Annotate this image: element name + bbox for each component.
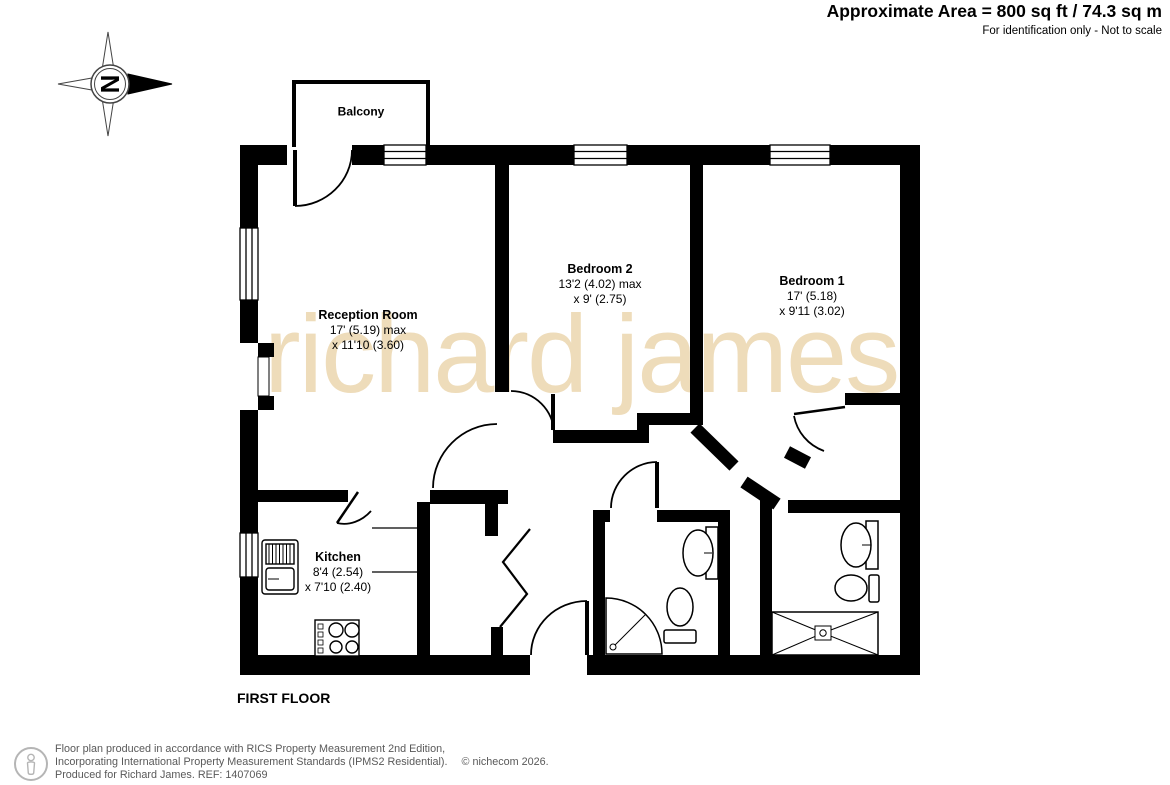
disclaimer-text: For identification only - Not to scale (827, 25, 1162, 37)
room-label-reception: Reception Room 17' (5.19) max x 11'10 (3… (318, 308, 417, 352)
toilet-icon (835, 575, 879, 602)
compass-north-point (102, 32, 114, 70)
alcove-wall-tab (258, 343, 274, 357)
wall-reception-bedroom2 (495, 165, 509, 392)
window-icon (384, 145, 426, 165)
wall-kitchen-top (258, 490, 348, 502)
alcove-niche (258, 357, 269, 396)
room-label-bedroom1: Bedroom 1 17' (5.18) x 9'11 (3.02) (779, 274, 844, 318)
ensuite-fixtures (772, 521, 879, 655)
room-label-kitchen: Kitchen 8'4 (2.54) x 7'10 (2.40) (305, 550, 371, 594)
kitchen-counter-lines (372, 528, 417, 572)
window-icon (240, 228, 258, 300)
hob-icon (315, 620, 359, 656)
compass-south-point (102, 98, 114, 136)
window-icon (770, 145, 830, 165)
sink-icon (683, 527, 718, 579)
wall-shower-room (593, 510, 605, 655)
wall-ensuite (760, 500, 772, 655)
door-reception (433, 424, 497, 488)
shower-icon (606, 598, 662, 654)
floorplan-page: richard james N (0, 0, 1170, 785)
floor-title: FIRST FLOOR (237, 690, 330, 706)
wall-bedroom2-bedroom1 (690, 165, 703, 425)
door-bedroom1 (794, 407, 845, 451)
compass-east-arrow (128, 74, 172, 94)
window-icon (240, 533, 258, 577)
compass-north-letter: N (95, 75, 125, 94)
footer-line2: Incorporating International Property Mea… (55, 756, 549, 769)
windows (240, 145, 830, 577)
diagonal-walls (695, 428, 808, 504)
wall-kitchen-right (417, 502, 430, 655)
footer-line3: Produced for Richard James. REF: 1407069 (55, 769, 549, 782)
door-entrance (531, 601, 587, 655)
door-bifold-cupboard (500, 529, 530, 627)
floorplan-drawing: N (0, 0, 1170, 785)
toilet-icon (664, 588, 696, 643)
room-label-bedroom2: Bedroom 2 13'2 (4.02) max x 9' (2.75) (559, 262, 642, 306)
kitchen-sink-icon (262, 540, 298, 594)
nichecom-logo-icon (12, 745, 50, 783)
header: Approximate Area = 800 sq ft / 74.3 sq m… (827, 1, 1162, 37)
compass-rose: N (58, 32, 172, 136)
footer-text: Floor plan produced in accordance with R… (55, 743, 549, 782)
door-bedroom2 (511, 391, 554, 433)
copyright-text: © nichecom 2026. (461, 756, 548, 768)
bathtub-icon (772, 612, 878, 655)
room-label-balcony: Balcony (338, 105, 385, 120)
footer: Floor plan produced in accordance with R… (0, 741, 1170, 785)
footer-line1: Floor plan produced in accordance with R… (55, 743, 549, 756)
window-icon (574, 145, 627, 165)
alcove-wall-tab (258, 396, 274, 410)
door-shower-room (611, 462, 657, 508)
compass-west-point (58, 78, 92, 90)
approximate-area-text: Approximate Area = 800 sq ft / 74.3 sq m (827, 1, 1162, 22)
shower-room-fixtures (606, 527, 718, 654)
door-balcony (295, 150, 352, 206)
sink-icon (841, 521, 878, 569)
